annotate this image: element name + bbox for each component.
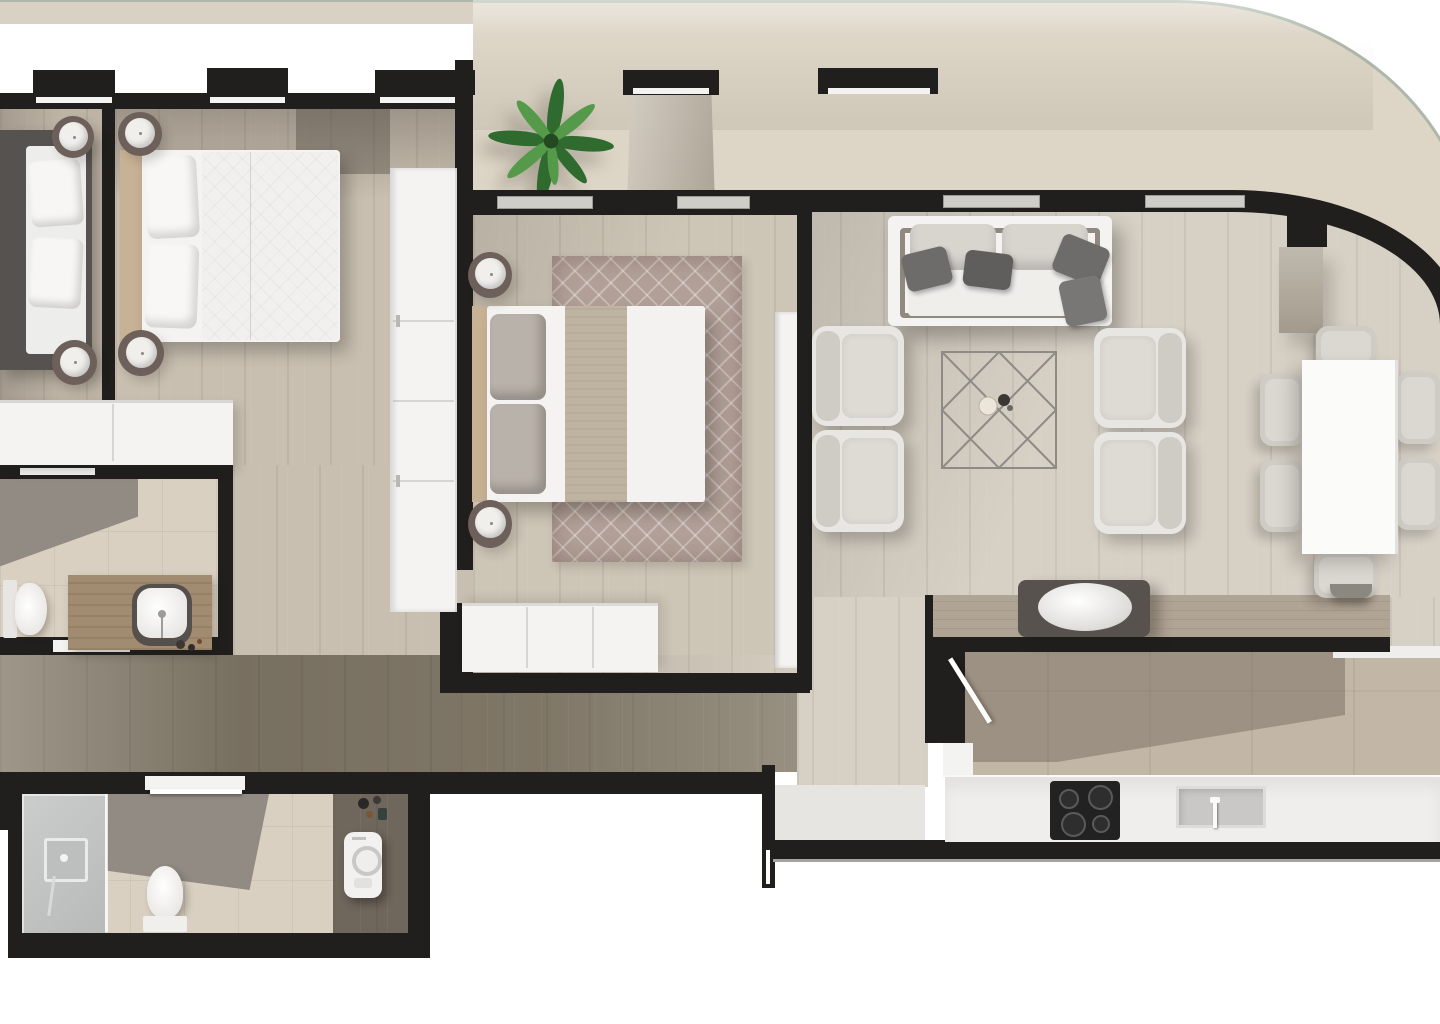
- toilet-bowl: [147, 866, 183, 918]
- window-glass: [380, 97, 460, 103]
- sink-faucet-head: [1210, 797, 1220, 803]
- nightstand-lamp: [52, 116, 94, 158]
- toilet-2: [143, 866, 187, 934]
- entry-vestibule-floor: [812, 597, 928, 787]
- sofa: [888, 216, 1112, 326]
- bed-duvet: [202, 152, 338, 340]
- bed-pillow: [28, 158, 84, 227]
- bathroom-1-right-wall: [218, 458, 233, 655]
- entrance-door-leaf: [766, 850, 770, 884]
- double-bed: [142, 150, 340, 342]
- bedroom-divider-wall: [102, 108, 115, 400]
- dining-table: [1302, 360, 1398, 554]
- hallway-bottom-wall: [0, 772, 775, 794]
- dining-walkway-floor: [1390, 597, 1440, 650]
- palm-plant-icon: [483, 76, 615, 202]
- master-right-wall: [797, 190, 812, 690]
- column-cap-sill: [633, 88, 709, 94]
- burner: [1061, 812, 1086, 837]
- armchair: [812, 430, 904, 532]
- bathroom-2-door-opening: [145, 776, 245, 790]
- serving-bowl: [1038, 583, 1132, 631]
- nightstand-lamp: [468, 252, 512, 298]
- bed-duvet: [627, 306, 705, 502]
- vessel-sink: [132, 584, 192, 646]
- sliding-glass-door: [943, 195, 1040, 208]
- nightstand-lamp: [118, 330, 164, 376]
- bathroom-2-bottom-wall: [8, 933, 430, 958]
- kitchen-door-opening: [943, 743, 973, 777]
- dining-chair: [1260, 374, 1304, 446]
- nightstand-lamp: [52, 340, 97, 385]
- toilet-bowl: [15, 583, 47, 635]
- planter-box-sill: [828, 88, 930, 94]
- window-box: [207, 68, 288, 95]
- kitchen-sink: [1176, 786, 1266, 828]
- south-wall: [773, 840, 1440, 860]
- south-wall-edge: [773, 859, 1440, 862]
- entry-threshold: [775, 785, 925, 840]
- master-dresser: [462, 603, 658, 672]
- sink-faucet: [1213, 800, 1217, 828]
- entry-vestibule-floor-strip: [797, 690, 812, 787]
- throw-pillow: [1058, 274, 1109, 328]
- window-glass: [20, 468, 95, 475]
- headboard-cushion: [490, 404, 546, 494]
- armchair: [1094, 432, 1186, 534]
- bathroom-2-right-wall: [408, 772, 430, 958]
- armchair: [1094, 328, 1186, 428]
- window-glass: [210, 97, 285, 103]
- bed-headboard: [120, 150, 142, 342]
- bed-headboard: [472, 306, 487, 502]
- headboard-cushion: [490, 314, 546, 400]
- master-wardrobe: [775, 312, 797, 668]
- peninsula-counter: [933, 595, 1390, 638]
- double-bed: [487, 306, 705, 502]
- shower-head: [44, 838, 88, 882]
- nightstand-lamp: [468, 500, 512, 548]
- bedroom2-master-wall: [455, 60, 473, 570]
- bed-runner: [565, 306, 627, 502]
- low-dresser: [0, 400, 233, 465]
- exterior-wall-band: [0, 0, 473, 24]
- window-glass: [36, 97, 112, 103]
- sliding-glass-door: [1145, 195, 1245, 208]
- bed-pillow: [28, 237, 84, 310]
- sliding-glass-door: [497, 196, 593, 209]
- dining-chair: [1260, 460, 1304, 532]
- master-door-gap: [455, 570, 473, 603]
- dining-chair: [1396, 458, 1440, 530]
- cooktop: [1050, 781, 1120, 840]
- burner: [1088, 785, 1113, 810]
- shelf-accessories: [356, 796, 392, 822]
- sliding-glass-door: [677, 196, 750, 209]
- bed-pillow: [145, 243, 200, 329]
- throw-pillow: [962, 249, 1014, 291]
- shower-glass: [105, 794, 108, 932]
- bathroom-2-left-wall: [8, 772, 22, 958]
- armchair: [812, 326, 904, 426]
- structural-column: [1279, 247, 1323, 333]
- washing-machine: [344, 832, 382, 898]
- dining-chair-pedestal: [1330, 584, 1372, 598]
- bed-dark: [0, 130, 92, 370]
- master-bottom-wall: [440, 673, 810, 693]
- toilet-tank: [143, 916, 187, 932]
- burner: [1059, 789, 1079, 809]
- peninsula-half-wall: [933, 637, 1390, 652]
- floor-plan: [0, 0, 1440, 1024]
- wall-nub: [0, 776, 10, 830]
- wall-stub: [1287, 205, 1327, 247]
- coffee-table: [940, 350, 1058, 470]
- dining-chair: [1396, 372, 1440, 444]
- nightstand-lamp: [118, 112, 162, 156]
- wardrobe: [390, 168, 457, 612]
- burner: [1092, 815, 1110, 833]
- vanity-accessories: [176, 638, 206, 656]
- bathroom-2-door-leaf: [150, 789, 242, 794]
- bed-pillow: [144, 155, 200, 240]
